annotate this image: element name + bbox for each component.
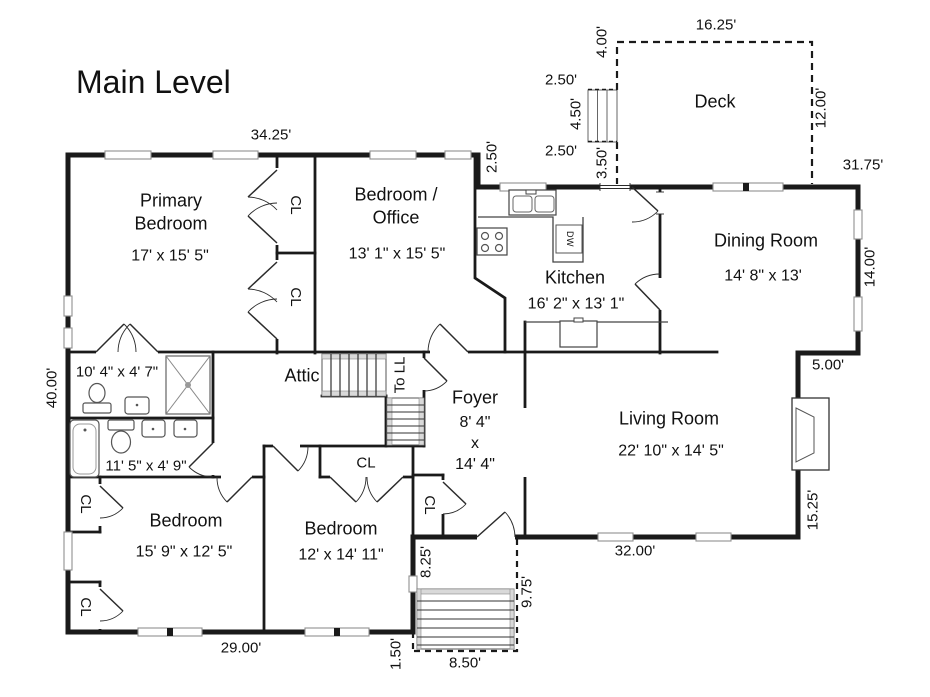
room-size-kitchen: 16' 2" x 13' 1" (528, 295, 625, 316)
closet-label-primary-lower: CL (285, 287, 305, 306)
closet-label-foyer: CL (419, 495, 439, 514)
closet-label-primary-upper: CL (285, 195, 305, 214)
attic-stairs (322, 354, 386, 396)
floor-plan-drawing (0, 0, 930, 697)
room-size-foyer: 8' 4" x 14' 4" (455, 413, 495, 475)
dim-deck-gap-lower: 2.50' (545, 141, 577, 161)
dim-bottom-width: 29.00' (221, 638, 261, 658)
room-size-bathroom-lower: 11' 5" x 4' 9" (105, 456, 186, 476)
page-title: Main Level (76, 64, 231, 101)
porch-steps (417, 589, 514, 649)
room-size-bedroom-sw: 15' 9" x 12' 5" (136, 543, 233, 564)
stairs-label-to-lower-level: To LL (390, 357, 410, 394)
room-label-living-room: Living Room (619, 407, 719, 430)
room-size-bathroom-upper: 10' 4" x 4' 7" (76, 362, 158, 382)
room-label-attic: Attic (284, 364, 319, 387)
bathtub (70, 420, 99, 477)
dim-deck-width: 16.25' (696, 15, 736, 35)
stove (477, 228, 507, 255)
dim-deck-setback: 4.00' (592, 26, 612, 58)
kitchen-island-sink (560, 318, 597, 347)
room-size-bedroom-se: 12' x 14' 11" (298, 546, 383, 567)
room-label-kitchen: Kitchen (545, 266, 605, 289)
kitchen-sink (509, 190, 556, 215)
room-label-primary-bedroom: Primary Bedroom (134, 190, 207, 237)
closet-label-sw-upper: CL (75, 494, 95, 513)
basement-stairs (387, 398, 424, 445)
dim-deck-landing: 3.50' (592, 147, 612, 179)
fireplace (792, 398, 829, 470)
room-size-living-room: 22' 10" x 14' 5" (618, 442, 724, 463)
closet-label-center: CL (356, 453, 375, 473)
dim-porch-width: 8.50' (449, 653, 481, 673)
dim-kitchen-offset: 2.50' (482, 141, 502, 173)
floor-plan-main-level: Main Level Primary Bedroom 17' x 15' 5" … (0, 0, 930, 697)
dim-porch-wall: 8.25' (416, 546, 436, 578)
dim-deck-door-gap: 2.50' (545, 70, 577, 90)
vanity-sink-upper (125, 397, 149, 414)
room-label-bedroom-office: Bedroom / Office (354, 184, 437, 231)
dim-left-depth: 40.00' (42, 368, 62, 408)
deck-steps (588, 90, 617, 143)
dim-top-width: 34.25' (251, 125, 291, 145)
toilet-lower (108, 420, 134, 453)
dim-right-width: 31.75' (843, 155, 883, 175)
room-size-dining-room: 14' 8" x 13' (724, 267, 802, 288)
dim-living-depth: 15.25' (803, 490, 823, 530)
dim-deck-depth: 12.00' (811, 88, 831, 128)
room-label-bedroom-sw: Bedroom (149, 509, 222, 532)
room-label-deck: Deck (694, 90, 735, 113)
vanity-sinks-lower (142, 420, 197, 437)
dim-living-offset: 5.00' (812, 355, 844, 375)
room-label-dining-room: Dining Room (714, 229, 818, 252)
room-label-foyer: Foyer (452, 386, 498, 409)
room-label-bedroom-se: Bedroom (304, 517, 377, 540)
dishwasher-label: DW (563, 231, 575, 247)
closet-label-sw-lower: CL (75, 597, 95, 616)
dim-living-width: 32.00' (615, 541, 655, 561)
toilet-upper (83, 384, 111, 414)
room-size-bedroom-office: 13' 1" x 15' 5" (349, 245, 446, 266)
dim-porch-depth: 9.75' (517, 576, 537, 608)
shower (166, 356, 210, 414)
room-size-primary-bedroom: 17' x 15' 5" (131, 247, 209, 268)
dim-dining-depth: 14.00' (860, 247, 880, 287)
dim-porch-offset: 1.50' (386, 638, 406, 670)
dim-deck-stairs: 4.50' (566, 98, 586, 130)
